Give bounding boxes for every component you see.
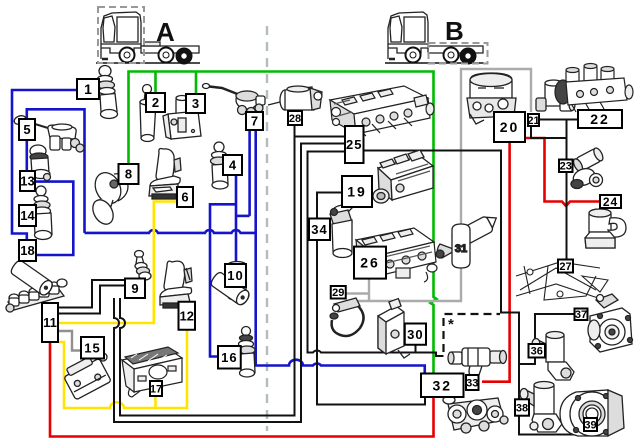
svg-text:10: 10 [227,268,243,283]
svg-text:28: 28 [289,113,301,125]
svg-text:27: 27 [559,261,571,273]
svg-text:20: 20 [500,119,520,135]
svg-text:4: 4 [229,158,237,173]
svg-text:21: 21 [527,115,539,127]
svg-text:5: 5 [23,122,30,137]
svg-text:13: 13 [20,174,34,189]
svg-text:11: 11 [43,315,57,330]
svg-text:2: 2 [152,95,159,110]
svg-text:17: 17 [150,384,162,396]
svg-text:A: A [156,17,175,47]
svg-text:B: B [445,16,464,46]
svg-text:38: 38 [516,403,528,415]
svg-text:33: 33 [466,378,478,390]
svg-text:39: 39 [584,420,596,432]
svg-text:14: 14 [20,208,35,223]
svg-text:31: 31 [455,243,467,255]
svg-text:24: 24 [603,195,618,209]
svg-text:6: 6 [181,190,188,205]
svg-text:16: 16 [221,350,237,365]
svg-text:3: 3 [192,96,199,111]
svg-text:22: 22 [590,111,610,127]
svg-text:37: 37 [575,309,587,321]
svg-text:36: 36 [531,346,543,358]
svg-text:26: 26 [360,255,380,271]
svg-text:19: 19 [347,184,367,200]
svg-text:7: 7 [251,114,258,129]
svg-text:30: 30 [407,327,423,342]
svg-text:1: 1 [84,81,92,97]
svg-text:8: 8 [125,167,132,182]
svg-text:15: 15 [84,340,100,355]
svg-text:18: 18 [20,243,34,258]
svg-text:32: 32 [432,377,452,393]
svg-text:23: 23 [560,161,572,173]
svg-text:*: * [448,316,454,333]
svg-text:12: 12 [180,308,194,323]
svg-text:34: 34 [311,222,327,237]
svg-text:29: 29 [332,287,344,299]
svg-text:25: 25 [346,137,362,152]
svg-text:9: 9 [131,281,138,296]
